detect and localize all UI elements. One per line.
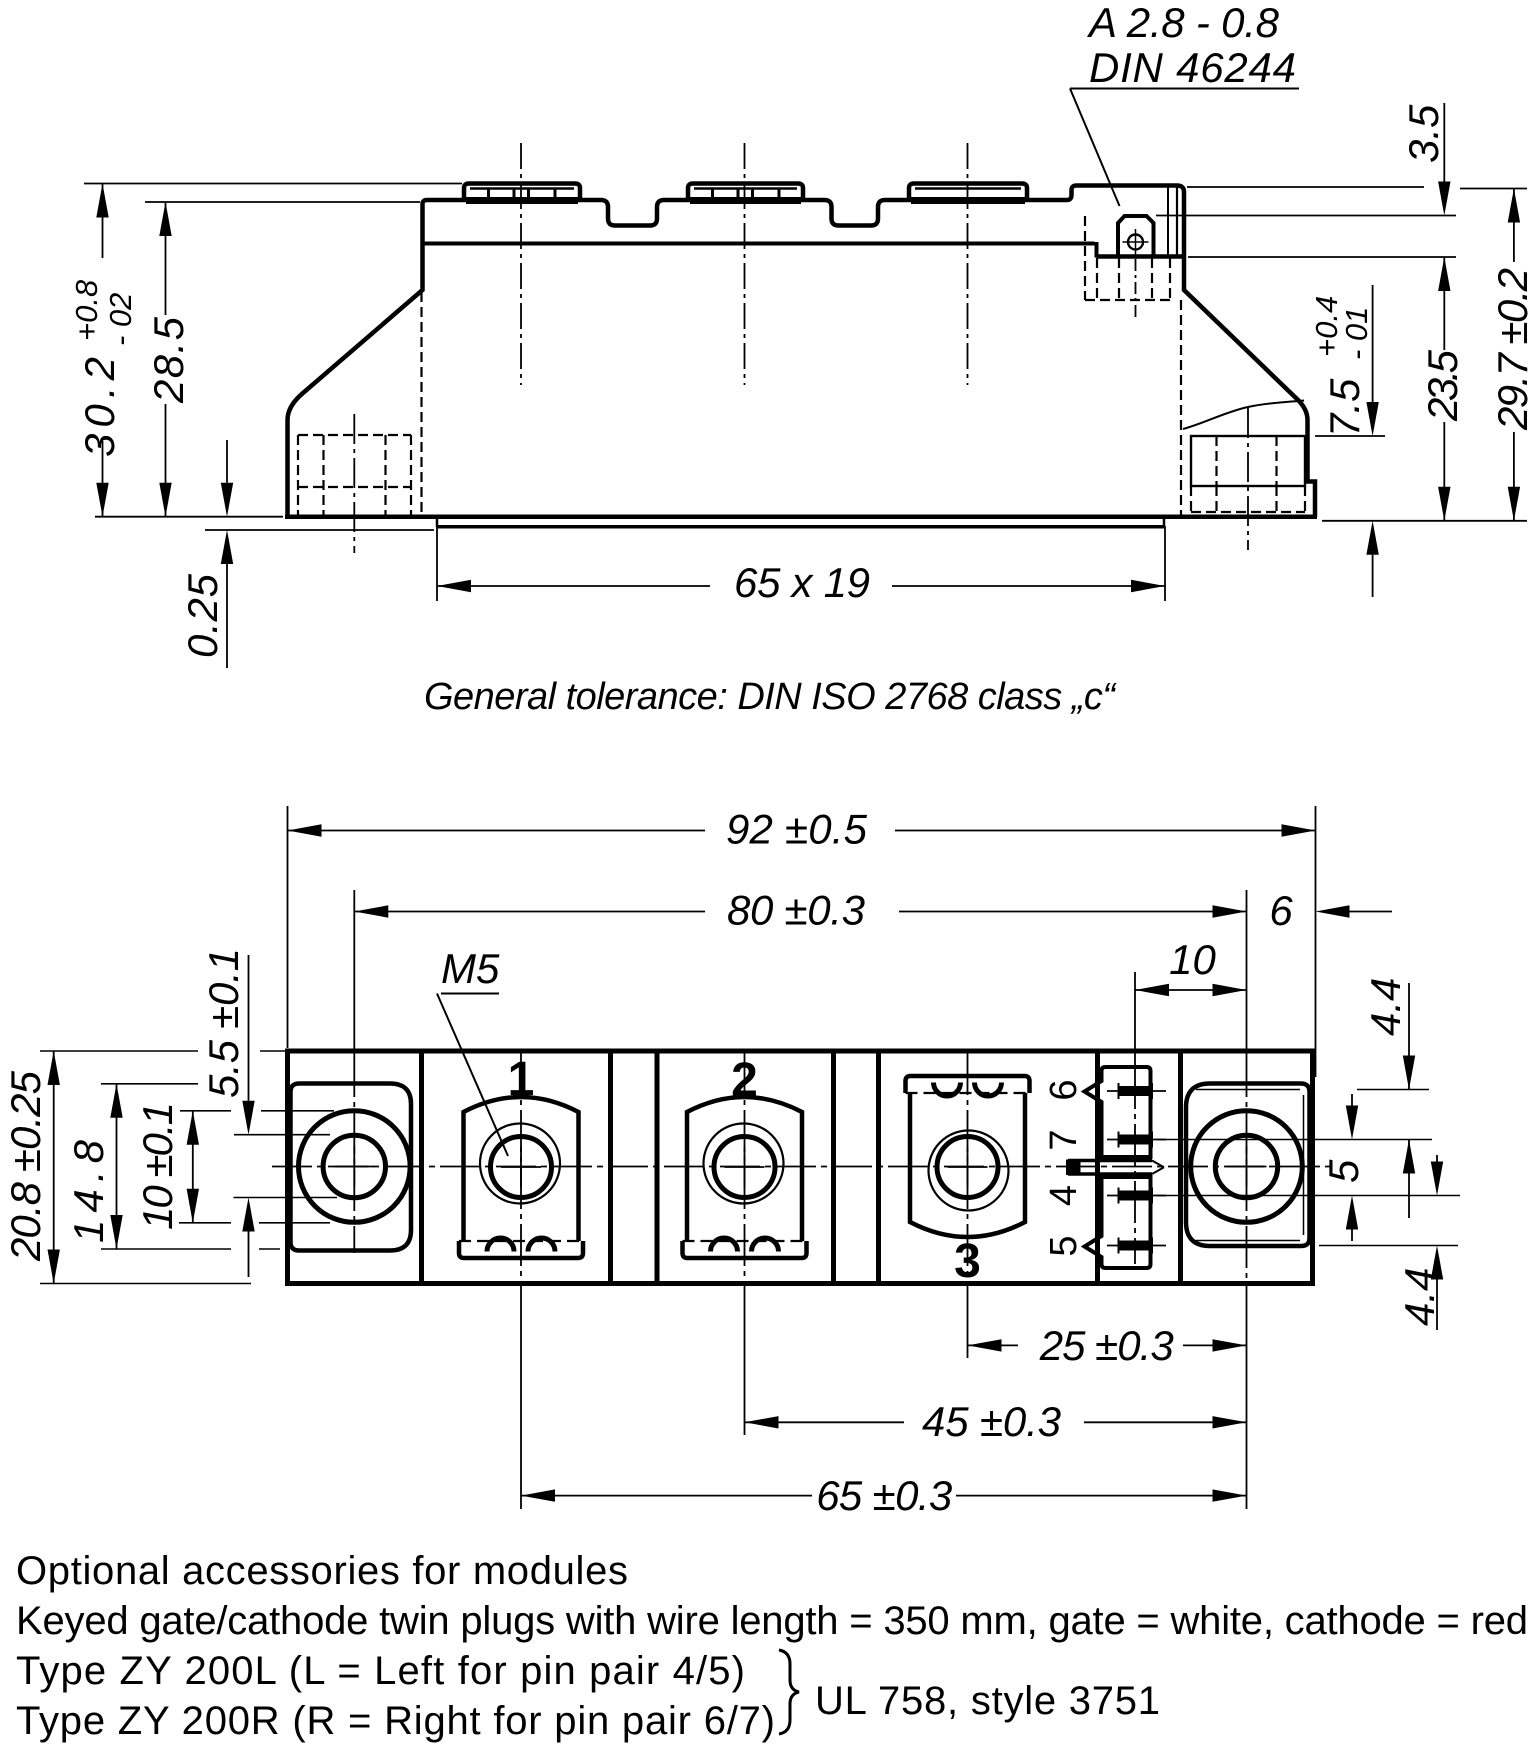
- svg-text:7.5: 7.5: [1321, 378, 1368, 437]
- svg-text:29.7 ±0.2: 29.7 ±0.2: [1489, 268, 1536, 431]
- svg-text:DIN 46244: DIN 46244: [1089, 44, 1296, 91]
- svg-text:General tolerance: DIN ISO 276: General tolerance: DIN ISO 2768 class „c…: [424, 676, 1117, 718]
- svg-text:Optional accessories for modul: Optional accessories for modules: [16, 1549, 628, 1593]
- svg-text:- 02: - 02: [103, 293, 138, 346]
- svg-text:4.4: 4.4: [1362, 978, 1409, 1036]
- svg-text:23.5: 23.5: [1419, 349, 1466, 422]
- svg-text:25 ±0.3: 25 ±0.3: [1039, 1322, 1174, 1369]
- svg-text:A 2.8 - 0.8: A 2.8 - 0.8: [1086, 0, 1280, 46]
- svg-text:5.5 ±0.1: 5.5 ±0.1: [200, 948, 247, 1098]
- svg-text:Keyed gate/cathode twin plugs: Keyed gate/cathode twin plugs with wire …: [16, 1599, 1528, 1643]
- svg-text:3.5: 3.5: [1400, 104, 1447, 163]
- svg-text:20.8 ±0.25: 20.8 ±0.25: [2, 1070, 49, 1262]
- svg-text:92 ±0.5: 92 ±0.5: [726, 806, 868, 853]
- svg-text:+0.8: +0.8: [69, 279, 104, 341]
- svg-text:30.2: 30.2: [76, 357, 123, 457]
- svg-text:28.5: 28.5: [145, 316, 192, 404]
- svg-text:Type ZY 200R (R = Right for pi: Type ZY 200R (R = Right for pin pair 6/7…: [16, 1699, 775, 1743]
- svg-text:0.25: 0.25: [179, 573, 226, 658]
- svg-text:65 ±0.3: 65 ±0.3: [816, 1472, 952, 1519]
- svg-text:5: 5: [1320, 1159, 1367, 1183]
- svg-text:80 ±0.3: 80 ±0.3: [727, 887, 865, 934]
- svg-text:Type ZY 200L (L = Left for pi: Type ZY 200L (L = Left for pin pair 4/5): [16, 1649, 745, 1693]
- svg-text:45 ±0.3: 45 ±0.3: [922, 1398, 1061, 1445]
- svg-text:M5: M5: [441, 945, 500, 992]
- svg-text:10: 10: [1169, 936, 1216, 983]
- svg-text:10 ±0.1: 10 ±0.1: [134, 1102, 181, 1230]
- svg-text:5: 5: [1043, 1235, 1085, 1256]
- svg-text:UL 758, style 3751: UL 758, style 3751: [815, 1679, 1160, 1723]
- svg-text:14.8: 14.8: [65, 1139, 112, 1243]
- svg-text:6: 6: [1043, 1079, 1085, 1100]
- svg-text:- 01: - 01: [1339, 307, 1374, 360]
- svg-text:7: 7: [1043, 1129, 1085, 1150]
- svg-text:6: 6: [1269, 887, 1293, 934]
- svg-text:4: 4: [1043, 1185, 1085, 1206]
- svg-text:65 x 19: 65 x 19: [734, 559, 870, 606]
- svg-text:4.4: 4.4: [1396, 1268, 1443, 1326]
